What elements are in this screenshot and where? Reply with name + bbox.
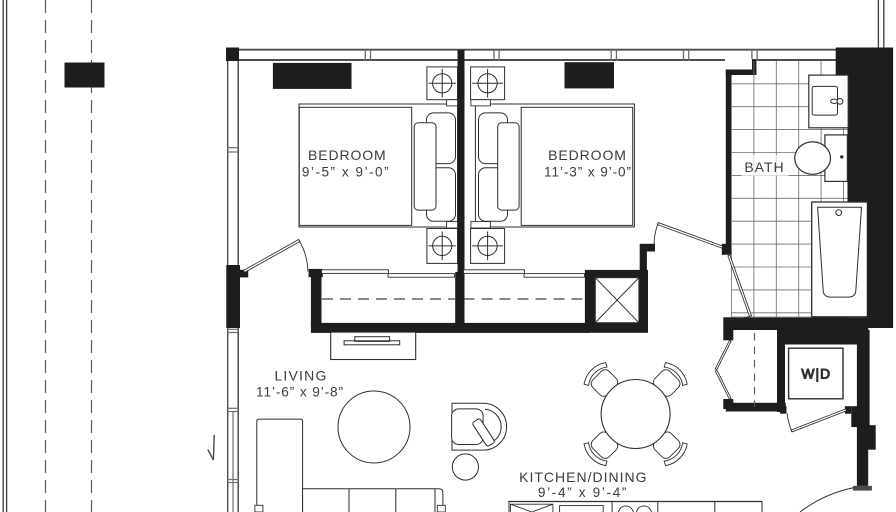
svg-text:9’-5” x 9’-0”: 9’-5” x 9’-0” (302, 164, 390, 179)
svg-text:LIVING: LIVING (274, 367, 327, 383)
svg-text:W|D: W|D (801, 367, 831, 382)
svg-text:BEDROOM: BEDROOM (548, 147, 627, 163)
svg-text:BEDROOM: BEDROOM (308, 147, 387, 163)
svg-text:11’-3” x 9’-0”: 11’-3” x 9’-0” (544, 164, 632, 179)
svg-text:BATH: BATH (744, 159, 784, 175)
svg-text:KITCHEN/DINING: KITCHEN/DINING (519, 469, 647, 485)
svg-text:11’-6” x 9’-8”: 11’-6” x 9’-8” (256, 384, 344, 399)
svg-text:9’-4” x 9’-4”: 9’-4” x 9’-4” (538, 485, 628, 500)
